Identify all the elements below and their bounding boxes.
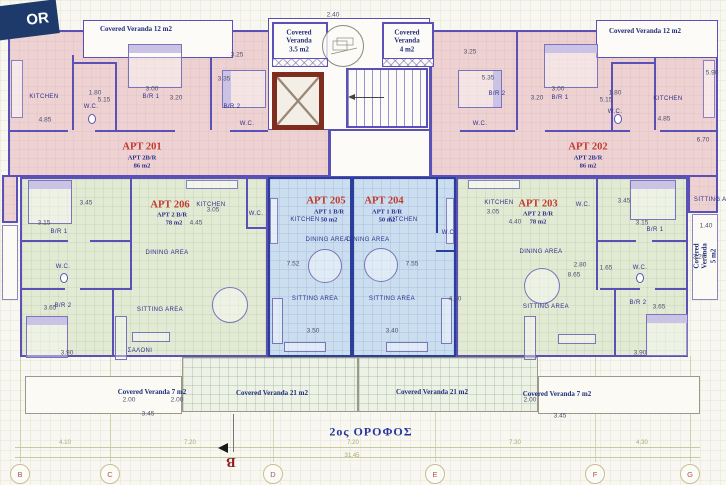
- veranda-label: Covered Veranda 7 m2: [118, 388, 187, 396]
- dimension-label: 4.40: [509, 219, 522, 226]
- toilet-icon: [636, 273, 644, 283]
- wall: [95, 130, 175, 132]
- dimension-label: 3.65: [653, 304, 666, 311]
- room-label: SITTING AREA: [369, 296, 415, 302]
- elevator-x-icon: [277, 77, 319, 125]
- dimension-label: 3.25: [231, 52, 244, 59]
- room-label: ΣΑΛΟΝΙ: [128, 348, 153, 354]
- wall: [115, 62, 117, 130]
- apt-203-area-label: 78 m2: [530, 219, 547, 226]
- veranda-label: Covered Veranda 21 m2: [396, 388, 468, 396]
- apt-204-type: APT 1 B/R: [372, 209, 402, 216]
- dimension-line: [15, 447, 700, 448]
- wall: [596, 240, 636, 242]
- apt-206-type: APT 2 B/R: [157, 212, 187, 219]
- toilet-icon: [614, 114, 622, 124]
- dimension-label: 5.15: [600, 97, 613, 104]
- apt-206-area-label: 78 m2: [166, 220, 183, 227]
- wall: [72, 62, 117, 64]
- sofa-icon: [272, 298, 283, 344]
- floor-plan: APT 201 APT 2B/R 86 m2 APT 202 APT 2B/R …: [0, 0, 726, 485]
- room-label: W.C.: [249, 211, 264, 217]
- dimension-label: 4.40: [449, 296, 462, 303]
- veranda-label: Covered Veranda 4 m2: [394, 28, 419, 53]
- dimension-label: 4.45: [190, 220, 203, 227]
- room-label: KITCHEN: [290, 217, 319, 223]
- bed-icon: [28, 180, 72, 224]
- room-label: SITTING AREA: [523, 304, 569, 310]
- sofa-icon: [284, 342, 326, 352]
- dimension-label: 7.52: [287, 261, 300, 268]
- apt-201-sitting-ext: [2, 175, 18, 223]
- dimension-label: 5.90: [706, 70, 719, 77]
- wall: [90, 240, 130, 242]
- toilet-icon: [60, 273, 68, 283]
- wall: [112, 288, 114, 357]
- wall: [8, 130, 68, 132]
- dimension-label: 1.65: [600, 265, 613, 272]
- wall: [611, 62, 656, 64]
- apt-204-label: APT 204: [364, 196, 403, 207]
- floor-tag-label: OR: [25, 9, 49, 29]
- dimension-label: 7.55: [406, 261, 419, 268]
- veranda-label: Covered Veranda 12 m2: [609, 27, 681, 35]
- grid-dimension-label: 7.20: [347, 440, 359, 446]
- apt-205-type: APT 1 B/R: [314, 209, 344, 216]
- apt-203-type: APT 2 B/R: [523, 211, 553, 218]
- veranda-label: Covered Veranda 12 m2: [100, 25, 172, 33]
- stair-direction-line: [352, 97, 384, 98]
- sofa-icon: [386, 342, 428, 352]
- dimension-label: 3.00: [552, 86, 565, 93]
- apt-201-area-label: 86 m2: [134, 163, 151, 170]
- sofa-icon: [524, 316, 536, 360]
- dimension-label: 3.15: [636, 220, 649, 227]
- veranda-label: Covered Veranda 21 m2: [236, 389, 308, 397]
- room-label: B/R 1: [142, 94, 159, 100]
- room-label: KITCHEN: [29, 94, 58, 100]
- sketch-lines: [323, 26, 365, 68]
- grid-bubble-B: B: [10, 464, 30, 484]
- room-label: B/R 2: [223, 104, 240, 110]
- room-label: DINING AREA: [145, 250, 188, 256]
- wall: [246, 227, 268, 229]
- dimension-label: 3.05: [207, 207, 220, 214]
- dimension-label: 3.40: [386, 328, 399, 335]
- wall: [230, 130, 268, 132]
- grid-dimension-label: 4.10: [59, 440, 71, 446]
- veranda-21-left: [182, 357, 358, 412]
- dimension-label: 1.40: [700, 223, 713, 230]
- dining-table-icon: [308, 249, 342, 283]
- wall: [545, 130, 630, 132]
- kitchen-counter: [270, 198, 278, 244]
- dimension-label: 5.15: [98, 97, 111, 104]
- grid-dimension-label: 7.30: [509, 440, 521, 446]
- sofa-icon: [558, 334, 596, 344]
- sofa-icon: [115, 316, 127, 360]
- apt-205-label: APT 205: [306, 196, 345, 207]
- wall: [516, 30, 518, 130]
- room-label: W.C.: [633, 265, 648, 271]
- dimension-label: 3.45: [142, 411, 155, 418]
- dimension-label: 3.35: [218, 76, 231, 83]
- dimension-label: 1.80: [609, 90, 622, 97]
- wall: [655, 288, 688, 290]
- apt-203-label: APT 203: [518, 199, 557, 210]
- dimension-label: 3.20: [693, 254, 706, 261]
- section-arrow-icon: [218, 443, 228, 453]
- grid-bubble-G: G: [680, 464, 700, 484]
- apt-202-area-label: 86 m2: [580, 163, 597, 170]
- veranda-grille: [272, 58, 328, 67]
- dimension-label: 3.15: [38, 220, 51, 227]
- room-label: W.C.: [56, 264, 71, 270]
- wall: [614, 288, 616, 357]
- bed-icon: [544, 44, 598, 88]
- grid-bubble-F: F: [585, 464, 605, 484]
- wall: [654, 55, 656, 130]
- dimension-label: 8.65: [568, 272, 581, 279]
- apt-202-label: APT 202: [568, 142, 607, 153]
- dimension-label: 6.70: [697, 137, 710, 144]
- room-label: W.C.: [240, 121, 255, 127]
- sofa-icon: [132, 332, 170, 342]
- room-label: KITCHEN: [484, 200, 513, 206]
- room-label: W.C.: [442, 230, 457, 236]
- dimension-label: 3.45: [80, 200, 93, 207]
- room-label: W.C.: [608, 109, 623, 115]
- kitchen-counter: [446, 198, 454, 244]
- dimension-label: 2.00: [524, 397, 537, 404]
- wall: [80, 288, 132, 290]
- dimension-label: 5.35: [482, 75, 495, 82]
- room-label: KITCHEN: [653, 96, 682, 102]
- dimension-label: 3.45: [554, 413, 567, 420]
- bed-icon: [646, 314, 688, 356]
- wall: [246, 177, 248, 227]
- dimension-label: 3.65: [44, 305, 57, 312]
- room-label: SITTING AREA: [292, 296, 338, 302]
- room-label: W.C.: [84, 104, 99, 110]
- wall: [652, 240, 688, 242]
- room-label: W.C.: [576, 202, 591, 208]
- stair-arrow-icon: [348, 94, 355, 100]
- veranda-grille: [382, 58, 434, 67]
- room-label: B/R 1: [646, 227, 663, 233]
- toilet-icon: [88, 114, 96, 124]
- dimension-label: 1.80: [89, 90, 102, 97]
- apt-205-area-label: 50 m2: [321, 217, 338, 224]
- sofa-icon: [441, 298, 452, 344]
- dimension-label: 3.25: [464, 49, 477, 56]
- wall: [72, 55, 74, 130]
- dimension-label: 3.20: [531, 95, 544, 102]
- wall: [20, 240, 68, 242]
- kitchen-counter: [468, 180, 520, 189]
- dimension-label: 4.85: [39, 117, 52, 124]
- grid-bubble-E: E: [425, 464, 445, 484]
- apt-202-type: APT 2B/R: [574, 155, 603, 162]
- bed-icon: [458, 70, 502, 108]
- section-cut-line: [233, 414, 234, 452]
- wall: [596, 177, 598, 290]
- apt-204-area-label: 50 m2: [379, 217, 396, 224]
- room-label: SITTING AREA: [694, 197, 726, 203]
- wall: [660, 130, 716, 132]
- apt-201-type: APT 2B/R: [128, 155, 157, 162]
- kitchen-counter: [11, 60, 23, 118]
- floor-title: 2ος ΟΡΟΦΟΣ: [329, 425, 412, 440]
- elevator-shaft: [272, 72, 324, 130]
- room-label: B/R 2: [488, 91, 505, 97]
- room-label: DINING AREA: [305, 237, 348, 243]
- wall: [600, 288, 640, 290]
- dimension-label: 3.20: [170, 95, 183, 102]
- grid-dimension-label: 4.30: [636, 440, 648, 446]
- wall: [20, 288, 65, 290]
- staircase: [346, 68, 428, 128]
- kitchen-counter: [186, 180, 238, 189]
- left-edge-strip: [2, 225, 18, 300]
- section-marker-label: B: [226, 453, 235, 469]
- veranda-label: Covered Veranda 3.5 m2: [286, 28, 311, 53]
- detail-sketch-circle: [322, 25, 364, 67]
- room-label: B/R 1: [50, 229, 67, 235]
- dining-table-icon: [524, 268, 560, 304]
- room-label: B/R 2: [629, 300, 646, 306]
- grid-overall-dimension: 31.45: [344, 453, 359, 459]
- room-label: DINING AREA: [346, 237, 389, 243]
- dimension-label: 3.90: [634, 350, 647, 357]
- wall: [436, 250, 456, 252]
- room-label: SITTING AREA: [137, 307, 183, 313]
- dimension-label: 3.90: [61, 350, 74, 357]
- dining-table-icon: [212, 287, 248, 323]
- apt-202-sitting-ext: [688, 175, 718, 213]
- veranda-12-right: [596, 20, 718, 58]
- apt-201-label: APT 201: [122, 142, 161, 153]
- dimension-label: 4.85: [658, 116, 671, 123]
- dimension-label: 2.00: [171, 397, 184, 404]
- room-label: DINING AREA: [519, 249, 562, 255]
- wall: [460, 130, 515, 132]
- dimension-label: 3.45: [618, 198, 631, 205]
- dimension-label: 3.50: [307, 328, 320, 335]
- dimension-label: 3.00: [146, 86, 159, 93]
- core-hall: [330, 130, 430, 177]
- dimension-label: 2.00: [123, 397, 136, 404]
- dimension-label: 3.05: [487, 209, 500, 216]
- apt-206-label: APT 206: [150, 200, 189, 211]
- grid-bubble-D: D: [263, 464, 283, 484]
- wall: [130, 177, 132, 290]
- room-label: W.C.: [473, 121, 488, 127]
- bed-icon: [630, 180, 676, 220]
- bed-icon: [128, 44, 182, 88]
- room-label: B/R 1: [551, 95, 568, 101]
- grid-dimension-label: 7.20: [184, 440, 196, 446]
- wall: [436, 177, 438, 233]
- veranda-21-right: [358, 357, 538, 412]
- dimension-label: 2.40: [327, 12, 340, 19]
- grid-bubble-C: C: [100, 464, 120, 484]
- dimension-label: 2.80: [574, 262, 587, 269]
- room-label: B/R 2: [54, 303, 71, 309]
- dining-table-icon: [364, 248, 398, 282]
